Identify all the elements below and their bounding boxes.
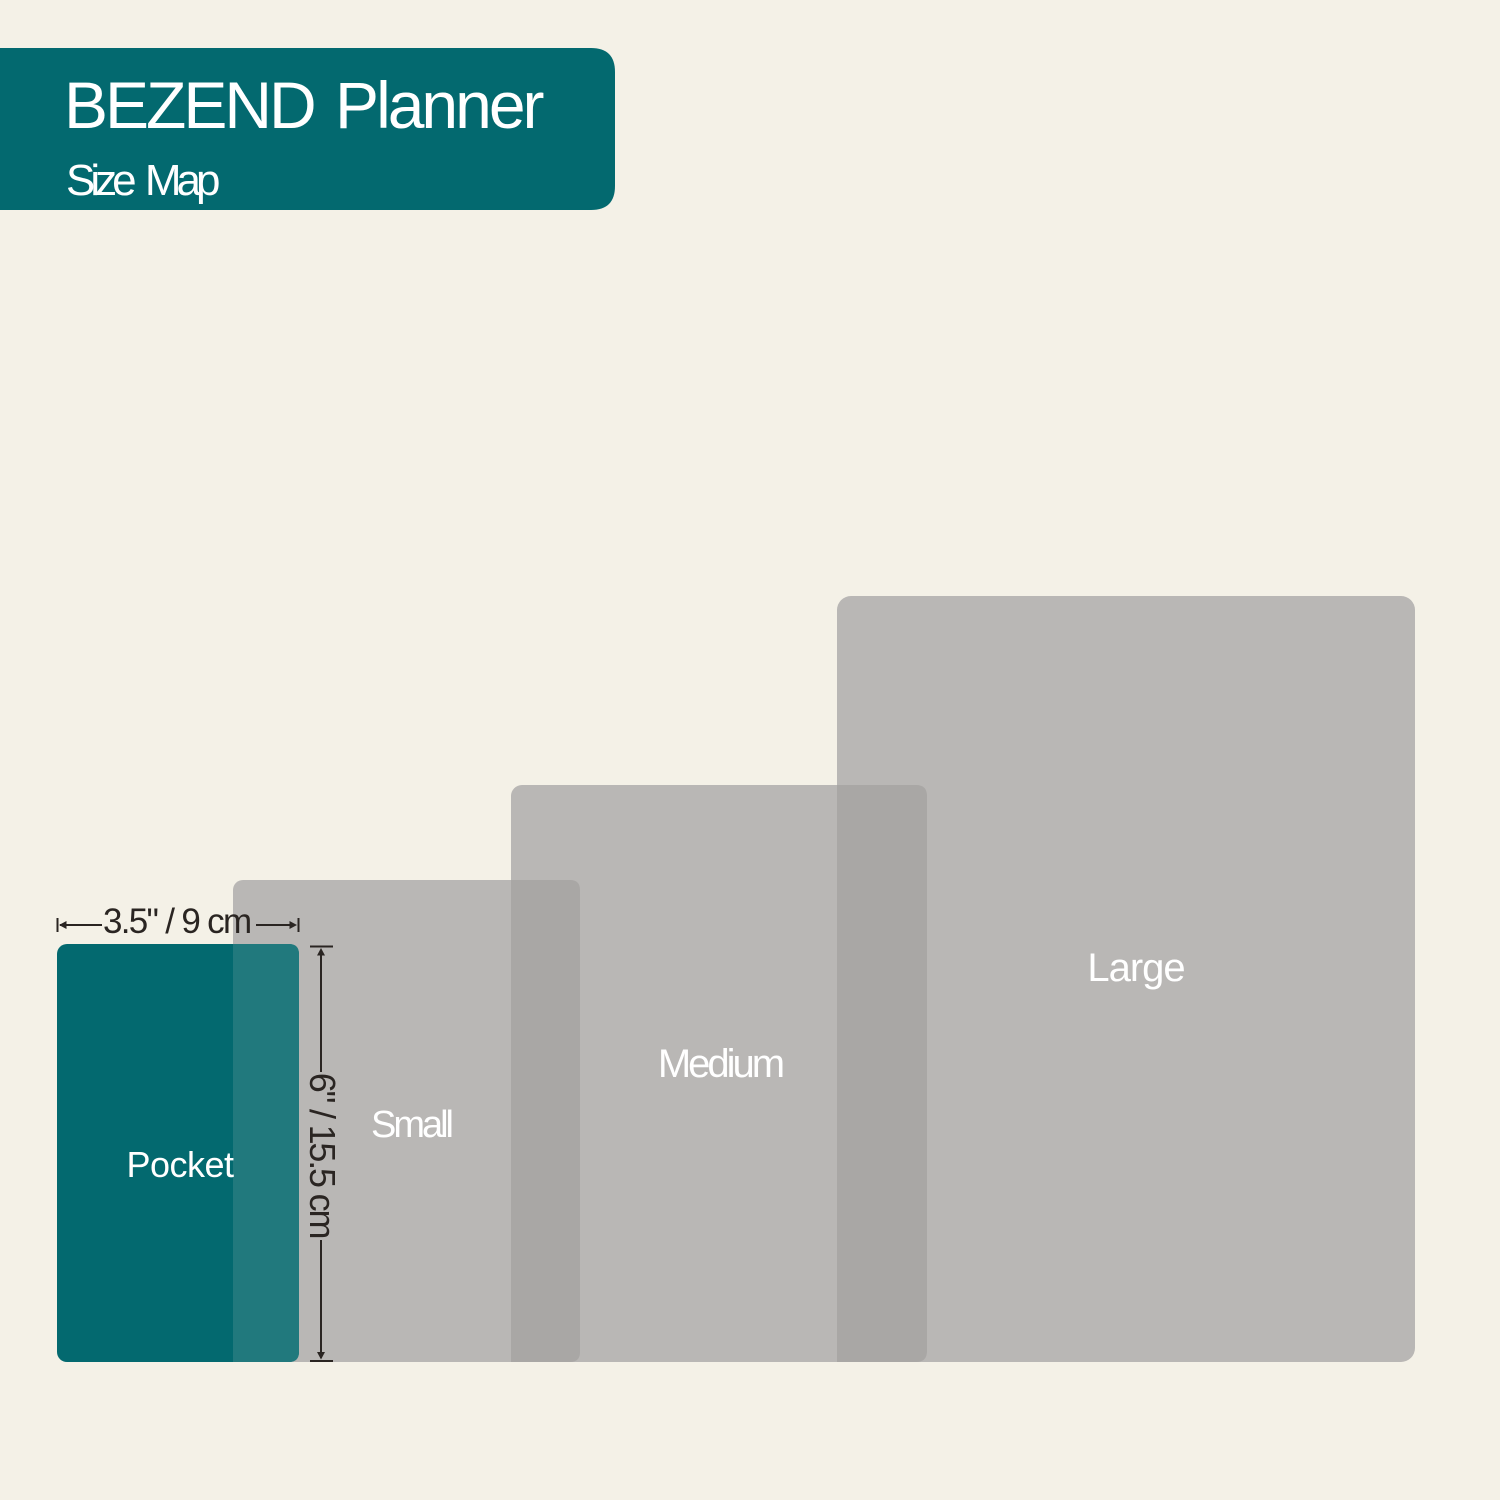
svg-text:Large: Large xyxy=(1087,946,1184,990)
svg-text:Pocket: Pocket xyxy=(126,1144,234,1185)
svg-text:Small: Small xyxy=(371,1104,452,1146)
svg-text:Medium: Medium xyxy=(658,1042,783,1086)
svg-text:3.5" / 9 cm: 3.5" / 9 cm xyxy=(103,902,250,941)
svg-text:6" / 15.5 cm: 6" / 15.5 cm xyxy=(302,1073,343,1238)
svg-text:Size Map: Size Map xyxy=(66,156,219,205)
svg-text:BEZEND Planner: BEZEND Planner xyxy=(64,68,544,142)
